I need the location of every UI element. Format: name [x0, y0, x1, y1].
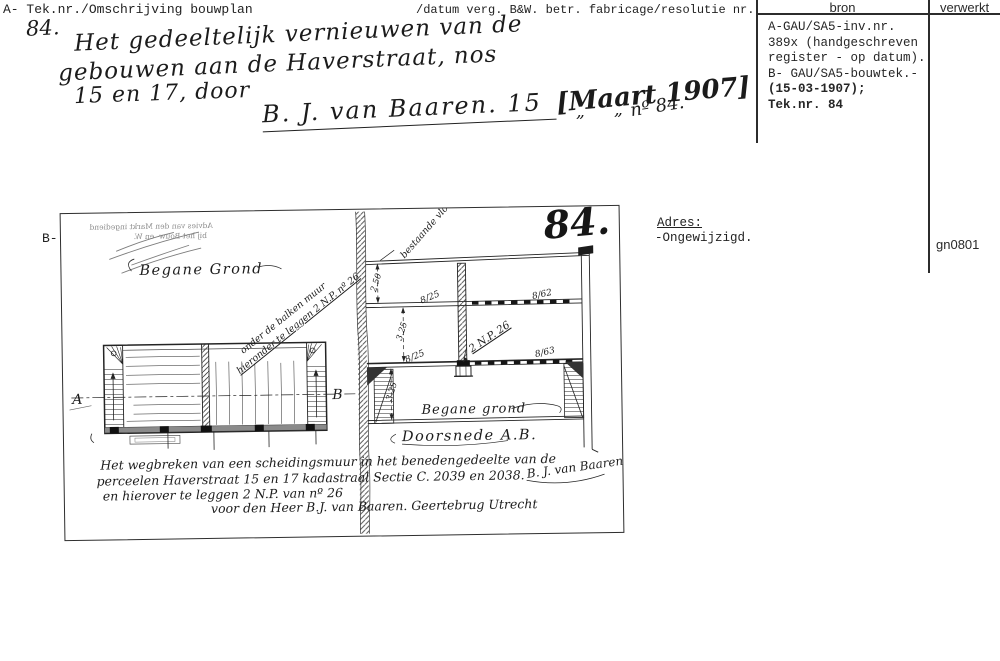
sheet-number: 84.: [541, 206, 612, 248]
party-wall-plan: [202, 344, 210, 432]
dim-text-mid: 3.25: [395, 321, 410, 342]
drawing-sheet: Advies van den Markt ingediend bij het B…: [60, 205, 625, 541]
bron-line: A-GAU/SA5-inv.nr.: [768, 20, 926, 36]
adres-value: -Ongewijzigd.: [655, 231, 753, 245]
ground-line: [368, 416, 584, 424]
bron-line: (15-03-1907);: [768, 82, 926, 98]
plan-annotation: onder de balken muur hieronder te leggen…: [233, 271, 363, 377]
beam-label: 8/25: [419, 289, 442, 306]
description-number: 84.: [25, 15, 60, 41]
np-beam-bearing: [456, 366, 471, 376]
bron-line: 389x (handgeschreven: [768, 36, 926, 52]
column-header-bron: bron: [757, 0, 928, 15]
existing-wall-label: bestaande vloer: [399, 206, 459, 261]
adres-label: Adres:: [657, 216, 702, 230]
side-label-b: B-: [42, 231, 58, 246]
plan-annotation-line: hieronder te leggen 2 N.P. nº 26: [235, 271, 362, 376]
column-header-verwerkt: verwerkt: [929, 0, 1000, 15]
description-line-3: 15 en 17, door: [74, 78, 251, 109]
bron-cell: A-GAU/SA5-inv.nr. 389x (handgeschreven r…: [768, 20, 926, 113]
bron-line: register - op datum).: [768, 51, 926, 67]
top-label-leader: [380, 250, 394, 260]
joists-left: [126, 356, 201, 421]
bron-line: B- GAU/SA5-bouwtek.-: [768, 67, 926, 83]
stamp-line: Advies van den Markt ingediend: [89, 221, 214, 232]
archive-card: A- Tek.nr./Omschrijving bouwplan /datum …: [0, 0, 1000, 661]
drawing-svg: Advies van den Markt ingediend bij het B…: [61, 206, 624, 540]
sheet-note: Het wegbreken van een scheidingsmuur in …: [96, 450, 623, 518]
processing-code: gn0801: [936, 237, 979, 252]
center-column: [457, 263, 466, 361]
floor-label: Begane grond: [420, 401, 526, 418]
bron-line: Tek.nr. 84: [768, 98, 926, 114]
header-left: A- Tek.nr./Omschrijving bouwplan: [3, 2, 253, 17]
np-beam-label: 2 N.P. 26: [466, 319, 513, 356]
ditto-mark: „: [576, 102, 585, 122]
table-line-left: [756, 0, 758, 143]
dim-text-top: 2.50: [369, 272, 385, 295]
right-wall: [581, 252, 598, 452]
beam-label: 8/63: [534, 346, 556, 360]
applicant-name: B. J. van Baaren. 15: [261, 88, 556, 133]
plan-title-group: Begane Grond: [128, 257, 281, 279]
joists-right: [216, 361, 295, 425]
section-marker-a: A: [70, 392, 82, 408]
plan-title: Begane Grond: [138, 261, 263, 279]
ditto-mark: „: [614, 100, 623, 120]
table-line-middle: [928, 0, 930, 273]
section-marker-b: B: [331, 387, 343, 403]
section-caption: Doorsnede A.B.: [401, 427, 537, 445]
dim-text-bottom: 3.25: [385, 381, 400, 402]
floor-plan: [69, 342, 357, 452]
cross-section: [365, 245, 604, 486]
